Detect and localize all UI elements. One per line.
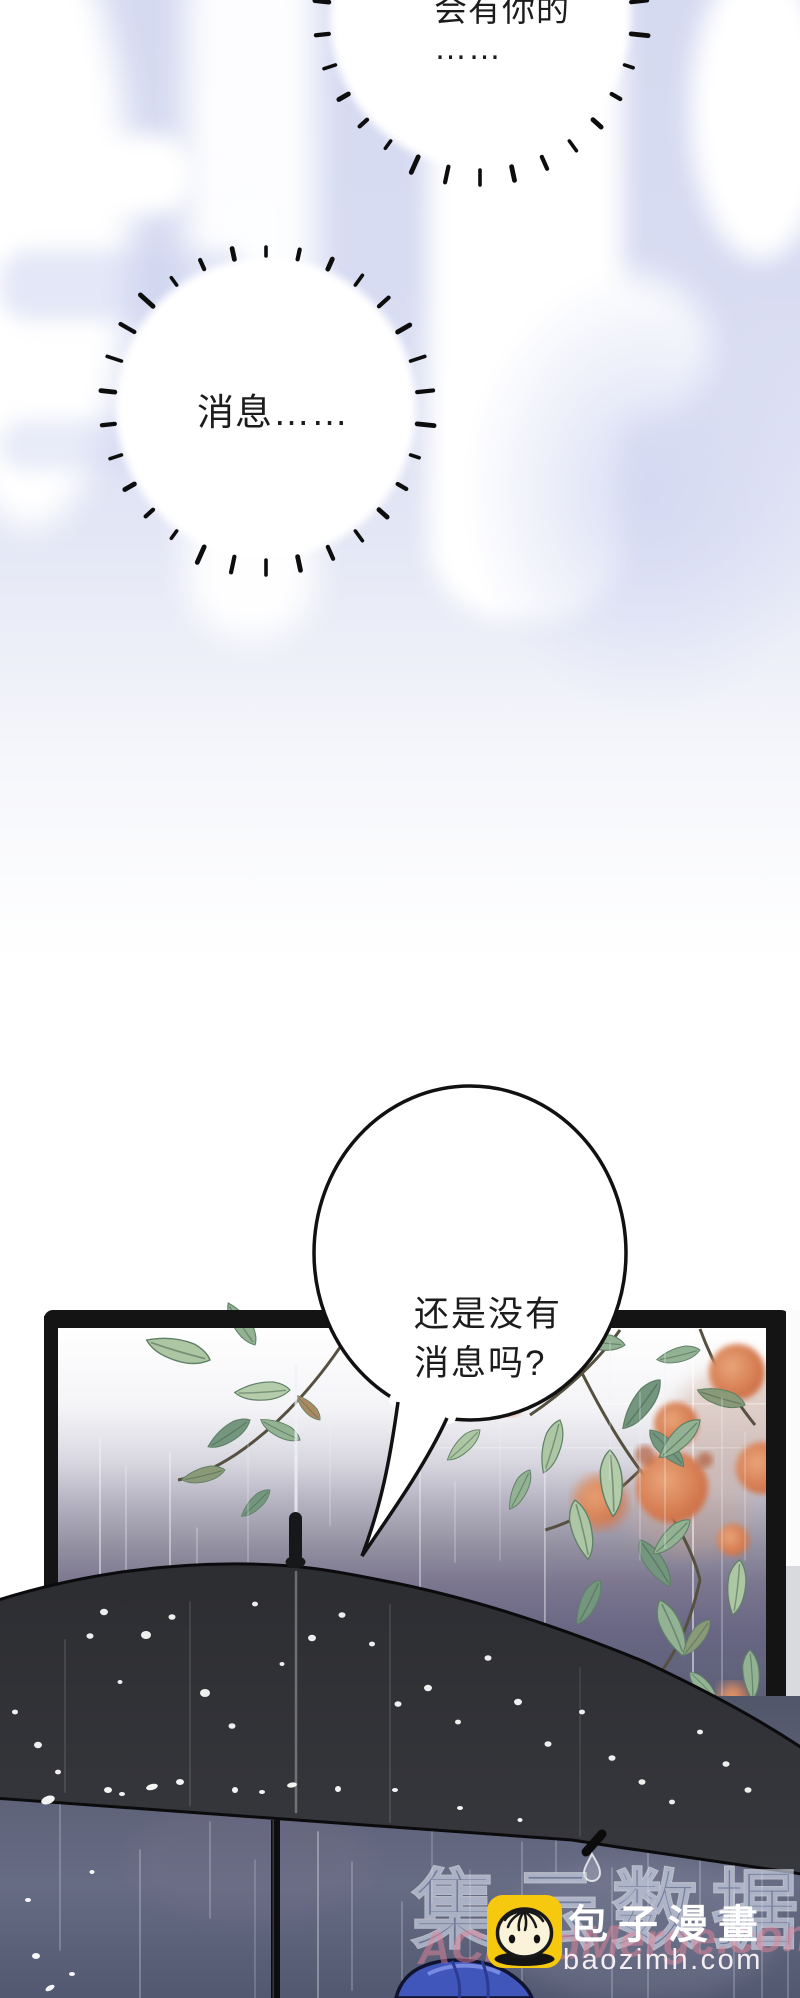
- spiky-bubble-rings: [0, 0, 800, 980]
- comic-page: 会有你的 …… 消息……: [0, 0, 800, 1998]
- speech-bubble-1-ellipsis: ……: [434, 26, 502, 71]
- umbrella-shaft: [271, 1820, 280, 1998]
- watermark-logo: 包子漫畫 baozimh.com: [487, 1895, 768, 1976]
- speech-bubble-3-line2: 消息吗?: [414, 1344, 546, 1383]
- wall-right: [786, 1310, 800, 1750]
- umbrella-ferrule: [289, 1512, 302, 1562]
- window-rain-scene: 还是没有 消息吗? 集云数据 ACloudMerge.com 包子漫畫 baoz…: [0, 1080, 800, 1998]
- speech-bubble-2-text: 消息……: [197, 388, 349, 438]
- site-name: 包子漫畫: [568, 1903, 768, 1947]
- window-frame-left-post: [44, 1316, 58, 1606]
- window-frame-right-post: [766, 1316, 786, 1756]
- site-domain: baozimh.com: [563, 1944, 763, 1976]
- speech-bubble-3-line1: 还是没有: [414, 1295, 562, 1334]
